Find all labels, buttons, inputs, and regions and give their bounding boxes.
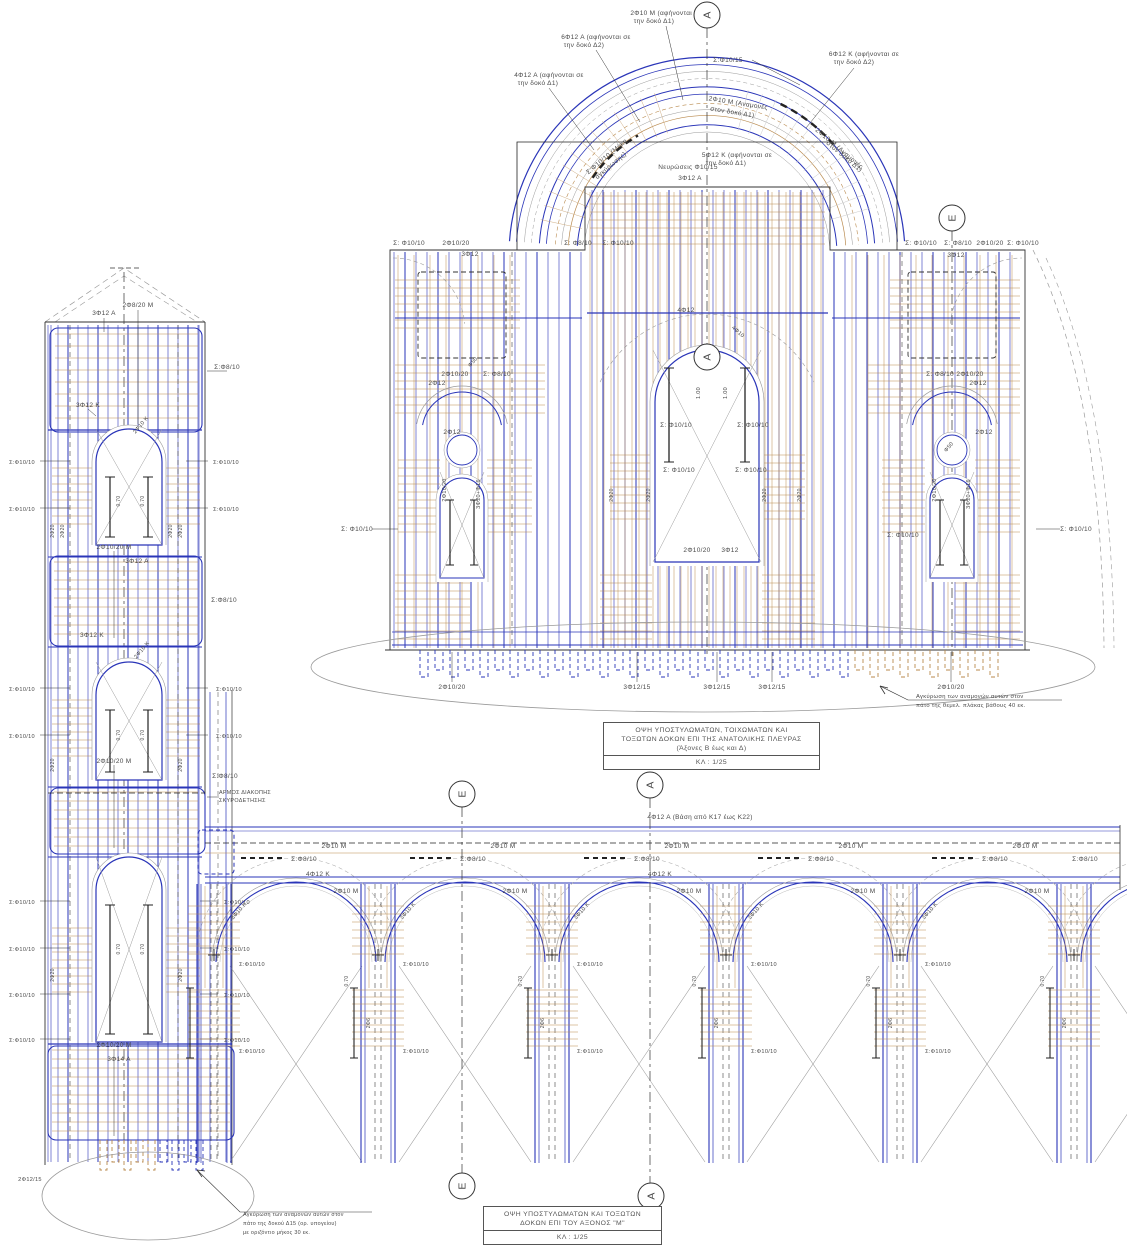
svg-text:2Φ10/20: 2Φ10/20 xyxy=(937,684,964,691)
svg-text:2Φ10/20: 2Φ10/20 xyxy=(932,478,938,501)
svg-text:Αγκύρωση των αναμονών αυτών στ: Αγκύρωση των αναμονών αυτών στον xyxy=(243,1212,344,1218)
svg-text:2Φ10 Μ: 2Φ10 Μ xyxy=(838,843,863,850)
svg-text:Σ:Φ8/10: Σ:Φ8/10 xyxy=(634,856,660,863)
svg-text:Σ: Φ10/10: Σ: Φ10/10 xyxy=(663,467,695,474)
svg-text:Σ: Φ10/10: Σ: Φ10/10 xyxy=(735,467,767,474)
svg-text:Σ: Φ10/10: Σ: Φ10/10 xyxy=(737,422,769,429)
svg-text:Σ: Φ10/10: Σ: Φ10/10 xyxy=(393,240,425,247)
svg-text:4Φ12 Α (Βάση από Κ17 έως Κ22): 4Φ12 Α (Βάση από Κ17 έως Κ22) xyxy=(647,813,752,821)
svg-text:0.70: 0.70 xyxy=(1040,976,1046,987)
svg-text:Σ:Φ10/10: Σ:Φ10/10 xyxy=(9,900,35,906)
svg-text:ΑΡΜΟΣ ΔΙΑΚΟΠΗΣ: ΑΡΜΟΣ ΔΙΑΚΟΠΗΣ xyxy=(219,790,271,796)
svg-text:Σ:Φ10/10: Σ:Φ10/10 xyxy=(9,947,35,953)
svg-text:3Φ20+Φ16: 3Φ20+Φ16 xyxy=(476,479,482,509)
svg-text:3Φ14 Α: 3Φ14 Α xyxy=(107,1056,131,1063)
svg-text:Α: Α xyxy=(645,781,657,788)
svg-text:Αγκύρωση των αναμονών αυτών στ: Αγκύρωση των αναμονών αυτών στον xyxy=(916,694,1024,700)
svg-text:Σ:Φ10/10: Σ:Φ10/10 xyxy=(9,993,35,999)
drawing-title-line: ΟΨΗ ΥΠΟΣΤΥΛΩΜΑΤΩΝ, ΤΟΙΧΩΜΑΤΩΝ ΚΑΙ xyxy=(606,726,817,735)
svg-text:Σ: Φ8/10: Σ: Φ8/10 xyxy=(564,240,592,247)
svg-text:2Φ10/20: 2Φ10/20 xyxy=(441,371,468,378)
svg-text:2Φ10/20: 2Φ10/20 xyxy=(442,478,448,501)
svg-text:2Φ10/20 Μ: 2Φ10/20 Μ xyxy=(97,544,132,551)
svg-text:2Φ10 Μ: 2Φ10 Μ xyxy=(502,888,527,895)
svg-text:Ε: Ε xyxy=(457,1182,469,1189)
svg-text:2Φ10/20: 2Φ10/20 xyxy=(956,371,983,378)
svg-text:4Φ12 Κ: 4Φ12 Κ xyxy=(306,871,330,878)
arcade-elevation-labels: 4Φ12 Α (Βάση από Κ17 έως Κ22)Σ:Φ8/10Σ:Φ8… xyxy=(230,813,1098,1055)
svg-text:Σ:Φ10/10: Σ:Φ10/10 xyxy=(9,1038,35,1044)
svg-text:2Φ20: 2Φ20 xyxy=(50,524,56,538)
svg-text:2Φ10 Μ: 2Φ10 Μ xyxy=(676,888,701,895)
svg-text:3Φ12 Α: 3Φ12 Α xyxy=(125,558,149,565)
svg-text:Σ:Φ10/10: Σ:Φ10/10 xyxy=(239,1049,265,1055)
structural-drawing-canvas: 6Φ12 Α (αφήνονται σετην δοκό Δ2)2Φ10 Μ (… xyxy=(0,0,1127,1255)
axis-marker-Α: Α xyxy=(694,2,720,28)
axis-marker-Ε: Ε xyxy=(449,781,475,807)
svg-text:2Φ12: 2Φ12 xyxy=(428,380,445,387)
drawing-title-line: ΔΟΚΩΝ ΕΠΙ ΤΟΥ ΑΞΟΝΟΣ "Μ" xyxy=(486,1219,659,1228)
svg-text:0.70: 0.70 xyxy=(518,976,524,987)
svg-text:Σ: Φ8/10: Σ: Φ8/10 xyxy=(944,240,972,247)
svg-text:0.70: 0.70 xyxy=(116,944,122,955)
svg-text:Σ:Φ10/15: Σ:Φ10/15 xyxy=(713,57,743,64)
svg-text:2Φ6: 2Φ6 xyxy=(540,1018,546,1028)
svg-text:6Φ12 Κ (αφήνονται σε: 6Φ12 Κ (αφήνονται σε xyxy=(829,51,899,58)
svg-text:2Φ20: 2Φ20 xyxy=(168,524,174,538)
drawing-scale: ΚΛ : 1/25 xyxy=(604,755,819,769)
svg-text:2Φ10/20: 2Φ10/20 xyxy=(683,547,710,554)
svg-text:Σ:Φ10/10: Σ:Φ10/10 xyxy=(577,1049,603,1055)
svg-text:3Φ10 Κ: 3Φ10 Κ xyxy=(399,902,417,921)
svg-text:2Φ20: 2Φ20 xyxy=(797,488,803,502)
svg-text:3Φ10 Κ: 3Φ10 Κ xyxy=(747,902,765,921)
svg-text:με οριζόντιο μήκος 30 εκ.: με οριζόντιο μήκος 30 εκ. xyxy=(243,1229,310,1236)
svg-text:4Φ10: 4Φ10 xyxy=(730,325,745,339)
svg-text:Σ:Φ10/10: Σ:Φ10/10 xyxy=(213,507,239,513)
svg-text:3Φ12 Α: 3Φ12 Α xyxy=(92,310,116,317)
tower-elevation-drawing xyxy=(40,268,372,1240)
svg-text:Σ:Φ10/10: Σ:Φ10/10 xyxy=(403,962,429,968)
svg-text:3Φ12/15: 3Φ12/15 xyxy=(623,684,650,691)
svg-text:την δοκό Δ2): την δοκό Δ2) xyxy=(834,58,874,66)
svg-text:0.70: 0.70 xyxy=(116,730,122,741)
svg-text:Σ: Φ8/10: Σ: Φ8/10 xyxy=(483,371,511,378)
svg-text:4Φ12 Α (αφήνονται σε: 4Φ12 Α (αφήνονται σε xyxy=(514,72,584,79)
svg-text:Α: Α xyxy=(702,353,714,360)
svg-text:2Φ20: 2Φ20 xyxy=(609,488,615,502)
svg-text:Ε: Ε xyxy=(947,214,959,221)
svg-text:2Φ8/20 Μ: 2Φ8/20 Μ xyxy=(122,302,153,309)
svg-text:πάτο της θεμελ. πλάκας βάθους: πάτο της θεμελ. πλάκας βάθους 40 εκ. xyxy=(916,702,1026,709)
svg-text:2Φ10/20: 2Φ10/20 xyxy=(442,240,469,247)
svg-text:2Φ10/20 Μ: 2Φ10/20 Μ xyxy=(97,758,132,765)
svg-text:Σ:Φ10/10: Σ:Φ10/10 xyxy=(9,460,35,466)
svg-text:Σ: Φ10/10: Σ: Φ10/10 xyxy=(1060,526,1092,533)
east-elevation-title-block: ΟΨΗ ΥΠΟΣΤΥΛΩΜΑΤΩΝ, ΤΟΙΧΩΜΑΤΩΝ ΚΑΙ ΤΟΞΩΤΩ… xyxy=(603,722,820,770)
svg-text:3Φ12: 3Φ12 xyxy=(721,547,738,554)
svg-text:Σ:Φ10/10: Σ:Φ10/10 xyxy=(403,1049,429,1055)
svg-text:2Φ10 Μ: 2Φ10 Μ xyxy=(664,843,689,850)
svg-text:Σ:Φ10/10: Σ:Φ10/10 xyxy=(224,993,250,999)
svg-text:2Φ10 Μ: 2Φ10 Μ xyxy=(1012,843,1037,850)
svg-text:2Φ20: 2Φ20 xyxy=(60,524,66,538)
svg-text:4Φ12 Κ: 4Φ12 Κ xyxy=(648,871,672,878)
svg-text:2Φ10 Μ: 2Φ10 Μ xyxy=(1024,888,1049,895)
svg-text:3Φ12: 3Φ12 xyxy=(947,252,964,259)
drawing-scale: ΚΛ : 1/25 xyxy=(484,1230,661,1244)
svg-text:2Φ6: 2Φ6 xyxy=(366,1018,372,1028)
svg-text:Α: Α xyxy=(646,1192,658,1199)
svg-text:0.70: 0.70 xyxy=(140,496,146,507)
svg-text:0.70: 0.70 xyxy=(140,944,146,955)
svg-text:2Φ20: 2Φ20 xyxy=(646,488,652,502)
svg-text:0.70: 0.70 xyxy=(140,730,146,741)
svg-text:3Φ10 Κ: 3Φ10 Κ xyxy=(921,902,939,921)
drawing-title-line: (Άξονες Β έως και Δ) xyxy=(606,744,817,753)
svg-text:πάτο της δοκού Δ15 (ορ. υπογεί: πάτο της δοκού Δ15 (ορ. υπογείου) xyxy=(243,1220,337,1227)
drawing-title-line: ΟΨΗ ΥΠΟΣΤΥΛΩΜΑΤΩΝ ΚΑΙ ΤΟΞΩΤΩΝ xyxy=(486,1210,659,1219)
axis-marker-Α: Α xyxy=(694,344,720,370)
svg-text:3Φ12 Α: 3Φ12 Α xyxy=(678,175,702,182)
axis-marker-Α: Α xyxy=(637,772,663,798)
svg-text:Σ:Φ10/10: Σ:Φ10/10 xyxy=(213,460,239,466)
svg-text:3Φ12 Κ: 3Φ12 Κ xyxy=(80,632,104,639)
svg-text:6Φ12 Α (αφήνονται σε: 6Φ12 Α (αφήνονται σε xyxy=(561,34,631,41)
svg-text:Σ:Φ8/10: Σ:Φ8/10 xyxy=(982,856,1008,863)
svg-text:2Φ12: 2Φ12 xyxy=(975,429,992,436)
svg-text:2Φ12: 2Φ12 xyxy=(969,380,986,387)
svg-text:Σ:Φ8/10: Σ:Φ8/10 xyxy=(214,364,240,371)
svg-text:την δοκό Δ1): την δοκό Δ1) xyxy=(706,159,746,167)
svg-text:Σ:Φ10/10: Σ:Φ10/10 xyxy=(239,962,265,968)
svg-text:ΣΚΥΡΟΔΕΤΗΣΗΣ: ΣΚΥΡΟΔΕΤΗΣΗΣ xyxy=(219,798,266,804)
svg-text:Σ: Φ10/10: Σ: Φ10/10 xyxy=(1007,240,1039,247)
svg-text:Σ:Φ10/10: Σ:Φ10/10 xyxy=(751,962,777,968)
svg-text:Σ:Φ10/10: Σ:Φ10/10 xyxy=(9,507,35,513)
svg-text:2Φ10/20: 2Φ10/20 xyxy=(438,684,465,691)
svg-text:Σ:Φ10/10: Σ:Φ10/10 xyxy=(925,962,951,968)
svg-text:Σ: Φ10/10: Σ: Φ10/10 xyxy=(905,240,937,247)
svg-text:2Φ6: 2Φ6 xyxy=(1062,1018,1068,1028)
svg-text:1.00: 1.00 xyxy=(723,387,729,399)
svg-text:3Φ20+Φ16: 3Φ20+Φ16 xyxy=(966,479,972,509)
svg-text:Σ:Φ10/10: Σ:Φ10/10 xyxy=(577,962,603,968)
svg-text:0.70: 0.70 xyxy=(692,976,698,987)
svg-text:την δοκό Δ1): την δοκό Δ1) xyxy=(634,17,674,25)
svg-text:3Φ12: 3Φ12 xyxy=(461,251,478,258)
svg-text:3Φ12/15: 3Φ12/15 xyxy=(758,684,785,691)
svg-text:Σ:Φ10/10: Σ:Φ10/10 xyxy=(216,734,242,740)
svg-text:0.70: 0.70 xyxy=(116,496,122,507)
svg-text:3Φ10 Κ: 3Φ10 Κ xyxy=(573,902,591,921)
drawing-title-line: ΤΟΞΩΤΩΝ ΔΟΚΩΝ ΕΠΙ ΤΗΣ ΑΝΑΤΟΛΙΚΗΣ ΠΛΕΥΡΑΣ xyxy=(606,735,817,744)
svg-text:2Φ12/15: 2Φ12/15 xyxy=(18,1177,42,1183)
svg-text:Σ:Φ10/10: Σ:Φ10/10 xyxy=(9,687,35,693)
svg-text:2Φ20: 2Φ20 xyxy=(50,758,56,772)
svg-text:Σ: Φ10/10: Σ: Φ10/10 xyxy=(602,240,634,247)
svg-text:2Φ10/20: 2Φ10/20 xyxy=(976,240,1003,247)
svg-text:2Φ10 Μ: 2Φ10 Μ xyxy=(333,888,358,895)
svg-text:2Φ10 Μ: 2Φ10 Μ xyxy=(490,843,515,850)
svg-text:την δοκό Δ2): την δοκό Δ2) xyxy=(564,41,604,49)
svg-text:Σ:Φ10/10: Σ:Φ10/10 xyxy=(224,947,250,953)
svg-text:2Φ12: 2Φ12 xyxy=(443,429,460,436)
svg-text:2Φ20: 2Φ20 xyxy=(178,524,184,538)
axis-marker-Ε: Ε xyxy=(939,205,965,231)
svg-text:Α: Α xyxy=(702,11,714,18)
svg-text:την δοκό Δ1): την δοκό Δ1) xyxy=(518,79,558,87)
svg-text:3Φ12/15: 3Φ12/15 xyxy=(703,684,730,691)
svg-text:2Φ6: 2Φ6 xyxy=(714,1018,720,1028)
svg-text:5Φ12 Κ (αφήνονται σε: 5Φ12 Κ (αφήνονται σε xyxy=(702,152,772,159)
svg-text:0.70: 0.70 xyxy=(344,976,350,987)
svg-text:2Φ10 Μ: 2Φ10 Μ xyxy=(321,843,346,850)
svg-text:Σ:Φ8/10: Σ:Φ8/10 xyxy=(460,856,486,863)
svg-text:2Φ20: 2Φ20 xyxy=(762,488,768,502)
svg-text:2Φ20: 2Φ20 xyxy=(50,968,56,982)
svg-text:2Φ10/20 Μ: 2Φ10/20 Μ xyxy=(97,1042,132,1049)
svg-text:3Φ12 Κ: 3Φ12 Κ xyxy=(76,402,100,409)
svg-text:2Φ10 Μ: 2Φ10 Μ xyxy=(850,888,875,895)
svg-text:2Φ10 Μ (αφήνονται σε: 2Φ10 Μ (αφήνονται σε xyxy=(630,10,701,17)
svg-text:Ε: Ε xyxy=(457,790,469,797)
svg-text:Σ:Φ10/10: Σ:Φ10/10 xyxy=(216,687,242,693)
structural-drawing-sheet: 6Φ12 Α (αφήνονται σετην δοκό Δ2)2Φ10 Μ (… xyxy=(0,0,1127,1255)
svg-text:Σ:Φ8/10: Σ:Φ8/10 xyxy=(808,856,834,863)
svg-text:2Φ20: 2Φ20 xyxy=(178,968,184,982)
svg-text:2Φ10 Κ: 2Φ10 Κ xyxy=(133,641,151,661)
svg-text:0.70: 0.70 xyxy=(866,976,872,987)
tower-elevation-labels: 3Φ12 Α2Φ8/20 ΜΣ:Φ8/103Φ12 Κ2Φ10 ΚΣ:Φ10/1… xyxy=(9,302,344,1236)
svg-text:2Φ20: 2Φ20 xyxy=(178,758,184,772)
svg-text:2Φ6: 2Φ6 xyxy=(888,1018,894,1028)
svg-text:1.00: 1.00 xyxy=(696,387,702,399)
svg-text:Σ: Φ10/10: Σ: Φ10/10 xyxy=(660,422,692,429)
svg-text:Σ:Φ10/10: Σ:Φ10/10 xyxy=(751,1049,777,1055)
svg-text:Σ:Φ8/10: Σ:Φ8/10 xyxy=(212,773,238,780)
svg-text:Σ:Φ8/10: Σ:Φ8/10 xyxy=(291,856,317,863)
svg-text:Σ:Φ10/10: Σ:Φ10/10 xyxy=(224,1038,250,1044)
svg-text:Σ:Φ8/10: Σ:Φ8/10 xyxy=(211,597,237,604)
svg-text:Σ: Φ10/10: Σ: Φ10/10 xyxy=(887,532,919,539)
svg-text:Σ:Φ10/10: Σ:Φ10/10 xyxy=(925,1049,951,1055)
svg-text:4Φ12: 4Φ12 xyxy=(677,307,694,314)
svg-text:Σ:Φ8/10: Σ:Φ8/10 xyxy=(1072,856,1098,863)
svg-text:Σ: Φ8/10: Σ: Φ8/10 xyxy=(926,371,954,378)
svg-text:Σ:Φ10/10: Σ:Φ10/10 xyxy=(9,734,35,740)
axis-marker-Ε: Ε xyxy=(449,1173,475,1199)
arcade-title-block: ΟΨΗ ΥΠΟΣΤΥΛΩΜΑΤΩΝ ΚΑΙ ΤΟΞΩΤΩΝ ΔΟΚΩΝ ΕΠΙ … xyxy=(483,1206,662,1245)
svg-text:Σ: Φ10/10: Σ: Φ10/10 xyxy=(341,526,373,533)
